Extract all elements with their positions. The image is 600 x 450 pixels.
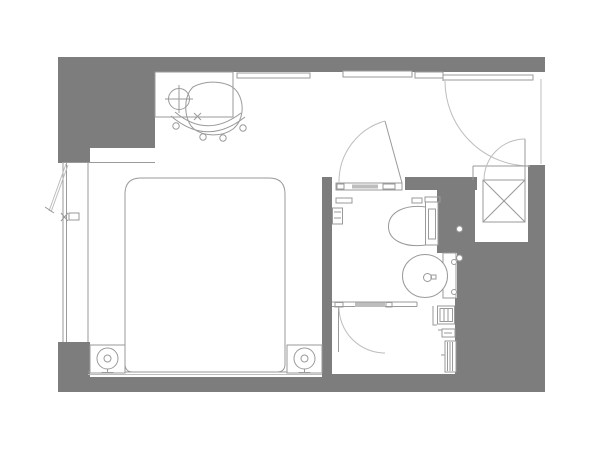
toilet-bowl — [388, 206, 426, 245]
toilet — [388, 197, 440, 246]
wall-panel-1 — [237, 73, 310, 78]
floor-plan-drawing — [0, 0, 600, 450]
shower-partition — [332, 302, 417, 353]
window-handle — [69, 213, 79, 220]
wall-east-outer — [528, 165, 545, 392]
entry-door-leaf — [443, 75, 533, 80]
chair-wheel-4 — [240, 125, 246, 131]
desk-area — [155, 72, 246, 141]
wall-south-bedroom — [88, 377, 332, 392]
chair-wheel-1 — [173, 123, 179, 129]
desk — [155, 72, 233, 117]
chair-wheel-2 — [200, 134, 206, 140]
wall-north — [58, 57, 545, 72]
wall-northwest-block — [58, 72, 155, 148]
shower-door-swing-arc — [339, 307, 385, 353]
wall-bathroom-west — [322, 177, 332, 392]
bathroom-door-swing-arc — [339, 121, 385, 182]
toilet-paper-holder — [333, 208, 343, 224]
bathroom-door-track-hatch — [352, 185, 378, 189]
wall-west-jamb-upper — [58, 148, 90, 163]
closet-door-swing-arc — [484, 139, 525, 180]
nightstand-right — [287, 345, 322, 373]
nightstand-left — [90, 345, 125, 373]
wall-panel-3 — [415, 72, 443, 78]
bed-mattress — [125, 178, 285, 372]
floor-plan-canvas — [0, 0, 600, 450]
shelf-bracket — [433, 306, 437, 325]
counter-knob-top — [452, 260, 457, 265]
shower-partition-hatch — [355, 303, 385, 308]
counter-knob-bottom — [452, 290, 457, 295]
toilet-flush-plate-1 — [412, 198, 422, 203]
closet — [473, 139, 528, 222]
wall-mounted-panels — [237, 71, 443, 78]
chair-wheel-3 — [220, 135, 226, 141]
bathroom-door — [336, 121, 402, 203]
wall-hook-2 — [457, 255, 463, 261]
bathroom-door-leaf — [385, 121, 402, 183]
bathroom-wall-vent — [336, 198, 352, 203]
wall-closet-niche-west — [455, 180, 473, 244]
entry-door — [443, 72, 541, 166]
entry-door-swing-arc — [445, 81, 530, 166]
wall-hook-1 — [457, 226, 463, 232]
wall-bathroom-south — [332, 374, 458, 392]
washbasin-bowl — [403, 255, 448, 298]
wall-east-mass — [455, 242, 537, 392]
wall-west-jamb-lower — [58, 342, 90, 392]
wall-panel-2 — [343, 71, 412, 77]
casement-leaf-line-2 — [51, 165, 68, 212]
